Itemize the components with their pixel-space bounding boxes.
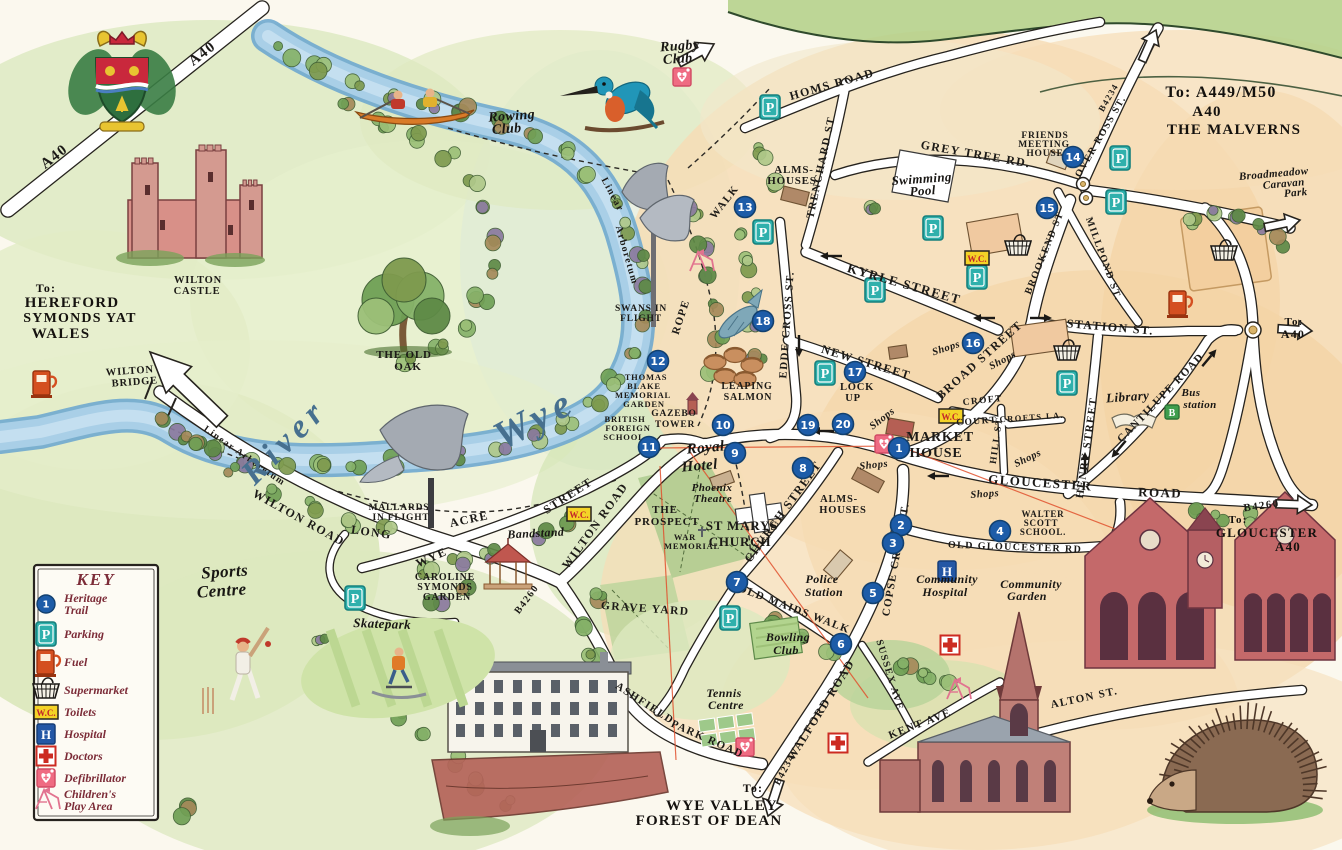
heritage-marker-6: 6 (831, 634, 852, 655)
svg-text:1: 1 (895, 442, 903, 455)
script-label-station: Station (805, 585, 843, 599)
heritage-marker-19: 19 (798, 415, 819, 436)
dest-label-the-malverns: THE MALVERNS (1167, 122, 1301, 138)
svg-text:P: P (929, 222, 938, 237)
place-label-school: SCHOOL (603, 432, 644, 442)
wc-icon: W.C. (567, 507, 591, 521)
wc-icon: W.C. (965, 251, 989, 265)
dest-label-gloucester: GLOUCESTER (1216, 525, 1318, 540)
heritage-marker-15: 15 (1037, 198, 1058, 219)
place-label-lock: LOCK (840, 382, 874, 393)
svg-text:3: 3 (889, 537, 897, 550)
svg-text:P: P (1063, 377, 1072, 392)
shops-label-shops: Shops (970, 488, 999, 501)
heritage-marker-16: 16 (963, 333, 984, 354)
heritage-marker-1: 1 (889, 438, 910, 459)
svg-text:19: 19 (800, 419, 815, 432)
bus-icon: B (1165, 405, 1179, 419)
dest-label-to-a449-m50: To: A449/M50 (1165, 84, 1276, 101)
place-label-tower: TOWER (655, 420, 695, 430)
place-label-school: SCHOOL. (1020, 527, 1066, 537)
place-label-gazebo: GAZEBO (651, 409, 696, 419)
place-label-church: CHURCH (709, 534, 772, 549)
heritage-marker-9: 9 (725, 443, 746, 464)
dest-label-wye-valley: WYE VALLEY (666, 798, 778, 814)
map-canvas: PPPPPPPPPPPW.C.W.C.W.C.HBA40A40HOMS ROAD… (0, 0, 1342, 850)
parking-icon: P (1057, 371, 1077, 395)
svg-text:5: 5 (869, 587, 877, 600)
svg-text:Trail: Trail (64, 603, 89, 617)
key-item-defibrillator-icon: Defibrillator (37, 769, 126, 787)
svg-text:16: 16 (965, 337, 981, 350)
svg-text:Play Area: Play Area (64, 799, 113, 813)
place-label-market: MARKET (906, 430, 974, 445)
place-label-houses: HOUSES (819, 505, 866, 516)
svg-text:2: 2 (897, 519, 905, 532)
svg-text:14: 14 (1065, 151, 1081, 164)
svg-text:8: 8 (799, 462, 807, 475)
place-label-garden: GARDEN (423, 592, 471, 603)
svg-text:15: 15 (1039, 202, 1054, 215)
parking-icon: P (753, 220, 773, 244)
place-label-oak: OAK (394, 361, 421, 373)
script-label-centre: Centre (708, 698, 744, 712)
parking-icon: P (345, 586, 365, 610)
svg-text:P: P (1116, 152, 1125, 167)
place-label-the-old: THE OLD (376, 349, 431, 361)
place-label-garden: GARDEN (623, 399, 665, 409)
heritage-marker-8: 8 (793, 458, 814, 479)
heritage-marker-20: 20 (833, 414, 854, 435)
dest-label-to: To: (36, 281, 57, 295)
svg-text:P: P (759, 226, 768, 241)
heritage-marker-17: 17 (845, 362, 866, 383)
parking-icon: P (1106, 190, 1126, 214)
place-label-st-marys: ST MARYS (706, 518, 779, 533)
parking-icon: P (923, 216, 943, 240)
svg-text:Parking: Parking (64, 627, 104, 641)
script-label-club: Club (662, 51, 693, 68)
svg-text:Defibrillator: Defibrillator (63, 771, 126, 785)
script-label-centre: Centre (196, 579, 247, 601)
svg-text:P: P (42, 628, 51, 643)
script-label-garden: Garden (1007, 589, 1047, 603)
key-title: KEY (75, 570, 115, 589)
defib-icon (673, 68, 691, 86)
dest-label-a40: A40 (1275, 539, 1301, 554)
svg-text:20: 20 (835, 418, 851, 431)
dest-label-forest-of-dean: FOREST OF DEAN (636, 813, 783, 829)
svg-text:W.C.: W.C. (967, 254, 986, 264)
parking-icon: P (815, 361, 835, 385)
svg-text:4: 4 (996, 525, 1004, 538)
place-label-leaping: LEAPING (721, 381, 772, 392)
place-label-up: UP (845, 393, 861, 404)
svg-text:10: 10 (715, 419, 731, 432)
dest-label-a40: A40 (1281, 327, 1305, 341)
script-label-park: Park (1283, 186, 1308, 200)
svg-text:P: P (726, 612, 735, 627)
script-label-pool: Pool (909, 182, 936, 199)
place-label-house: HOUSE (909, 446, 962, 461)
map-key: KEY1HeritageTrailPParkingFuelSupermarket… (33, 565, 158, 820)
dest-label-wales: WALES (32, 326, 91, 342)
svg-text:9: 9 (731, 447, 739, 460)
svg-text:7: 7 (733, 576, 741, 589)
heritage-marker-18: 18 (753, 311, 774, 332)
doctors-icon (941, 636, 960, 655)
script-label-bus: Bus (1181, 387, 1201, 399)
svg-text:Fuel: Fuel (63, 655, 88, 669)
script-label-club: Club (491, 121, 522, 138)
svg-text:P: P (1112, 196, 1121, 211)
heritage-marker-13: 13 (735, 197, 756, 218)
place-label-prospect: PROSPECT (634, 516, 699, 528)
place-label-mallards: MALLARDS (369, 503, 430, 513)
svg-text:12: 12 (650, 355, 665, 368)
script-label-royal: Royal (685, 438, 726, 457)
place-label-swans-in: SWANS IN (615, 304, 667, 314)
svg-text:18: 18 (755, 315, 770, 328)
script-label-station: station (1182, 399, 1216, 411)
place-label-castle: CASTLE (174, 286, 221, 297)
heritage-marker-4: 4 (990, 521, 1011, 542)
svg-text:P: P (766, 101, 775, 116)
heritage-marker-10: 10 (713, 415, 734, 436)
svg-text:P: P (973, 271, 982, 286)
road-label-road: ROAD (1138, 484, 1182, 501)
heritage-marker-11: 11 (639, 437, 660, 458)
script-label-club: Club (773, 643, 799, 657)
svg-text:6: 6 (837, 638, 845, 651)
heritage-marker-3: 3 (883, 533, 904, 554)
svg-text:Toilets: Toilets (64, 705, 97, 719)
place-label-the: THE (652, 504, 678, 516)
ross-on-wye-illustrated-map: PPPPPPPPPPPW.C.W.C.W.C.HBA40A40HOMS ROAD… (0, 0, 1342, 850)
svg-text:P: P (821, 367, 830, 382)
heritage-marker-12: 12 (648, 351, 669, 372)
svg-text:17: 17 (847, 366, 862, 379)
script-label-skatepark: Skatepark (353, 615, 411, 632)
place-label-house: HOUSE (1026, 149, 1063, 159)
place-label-wilton: WILTON (174, 275, 222, 286)
svg-text:Doctors: Doctors (63, 749, 103, 763)
heritage-marker-7: 7 (727, 572, 748, 593)
parking-icon: P (720, 606, 740, 630)
svg-text:W.C.: W.C. (36, 708, 55, 718)
svg-text:W.C.: W.C. (569, 510, 588, 520)
place-label-in-flight: IN FLIGHT (372, 513, 429, 523)
dest-label-symonds-yat: SYMONDS YAT (23, 311, 136, 326)
svg-text:B: B (1169, 408, 1176, 419)
svg-text:13: 13 (737, 201, 752, 214)
svg-text:Hospital: Hospital (63, 727, 107, 741)
script-label-theatre: Theatre (694, 493, 732, 505)
place-label-salmon: SALMON (724, 392, 773, 403)
parking-icon: P (1110, 146, 1130, 170)
script-label-library: Library (1105, 388, 1150, 406)
key-item-toilets-icon: W.C.Toilets (34, 705, 97, 719)
script-label-bowling: Bowling (765, 630, 810, 644)
place-label-flight: FLIGHT (620, 314, 662, 324)
script-label-community: Community (916, 572, 978, 586)
dest-label-hereford: HEREFORD (25, 295, 120, 311)
svg-text:P: P (871, 284, 880, 299)
key-item-doctors-icon: Doctors (37, 747, 103, 766)
place-label-alms: ALMS- (820, 494, 858, 505)
svg-text:H: H (41, 727, 51, 742)
svg-text:Supermarket: Supermarket (64, 683, 129, 697)
doctors-icon (829, 734, 848, 753)
heritage-marker-5: 5 (863, 583, 884, 604)
script-label-hotel: Hotel (680, 456, 719, 475)
svg-text:P: P (351, 592, 360, 607)
svg-text:11: 11 (641, 441, 656, 454)
svg-text:1: 1 (43, 600, 50, 611)
dest-label-a40: A40 (1192, 104, 1221, 120)
parking-icon: P (967, 265, 987, 289)
script-label-police: Police (805, 572, 838, 586)
heritage-marker-14: 14 (1063, 147, 1084, 168)
script-label-hospital: Hospital (921, 585, 967, 599)
place-label-houses: HOUSES (767, 175, 816, 187)
dest-label-to: To: (743, 781, 764, 795)
parking-icon: P (760, 95, 780, 119)
